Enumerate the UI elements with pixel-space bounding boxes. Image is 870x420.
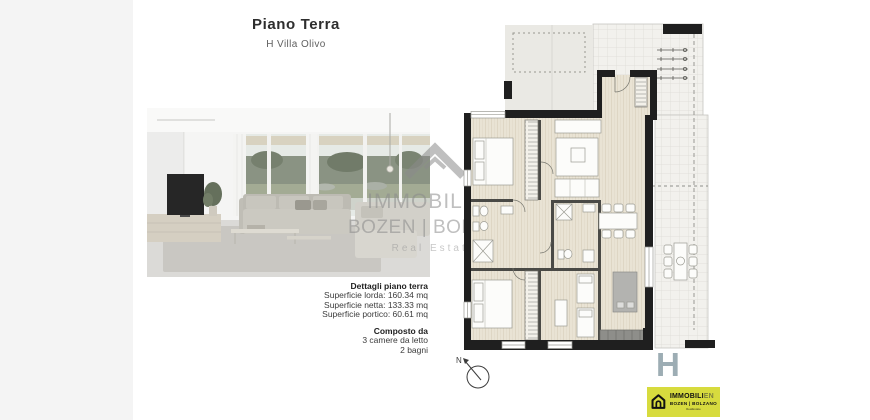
logo-text: IMMOBILIEN BOZEN | BOLZANO RealEstate [670,393,717,411]
agency-logo: IMMOBILIEN BOZEN | BOLZANO RealEstate [647,387,720,417]
details-block: Dettagli piano terra Superficie lorda: 1… [258,282,428,355]
tv [167,174,204,217]
logo-house-icon [650,392,667,412]
outdoor-dining-set [664,243,697,280]
bed-double-1 [473,138,513,185]
bed-double-2 [472,280,512,328]
tv-sideboard [147,214,221,242]
page-title: Piano Terra [218,16,374,33]
unit-letter: H [656,346,680,384]
logo-location: BOZEN | BOLZANO [670,402,717,407]
interior-photo [147,108,430,277]
page-margin-band [0,0,133,420]
title-block: Piano Terra H Villa Olivo [218,16,374,50]
detail-line: Superficie portico: 60.61 mq [258,310,428,319]
compass-north-label: N [456,356,462,365]
floor-plan [455,12,715,362]
logo-tagline: RealEstate [670,408,717,411]
compass-needle [463,358,469,364]
composition-line: 2 bagni [258,346,428,355]
compass: N [455,351,495,393]
dining-set [599,204,637,238]
portico [505,25,593,113]
logo-brand: IMMOBILIEN [670,393,717,400]
living-room [555,120,601,197]
page-subtitle: H Villa Olivo [218,39,374,50]
